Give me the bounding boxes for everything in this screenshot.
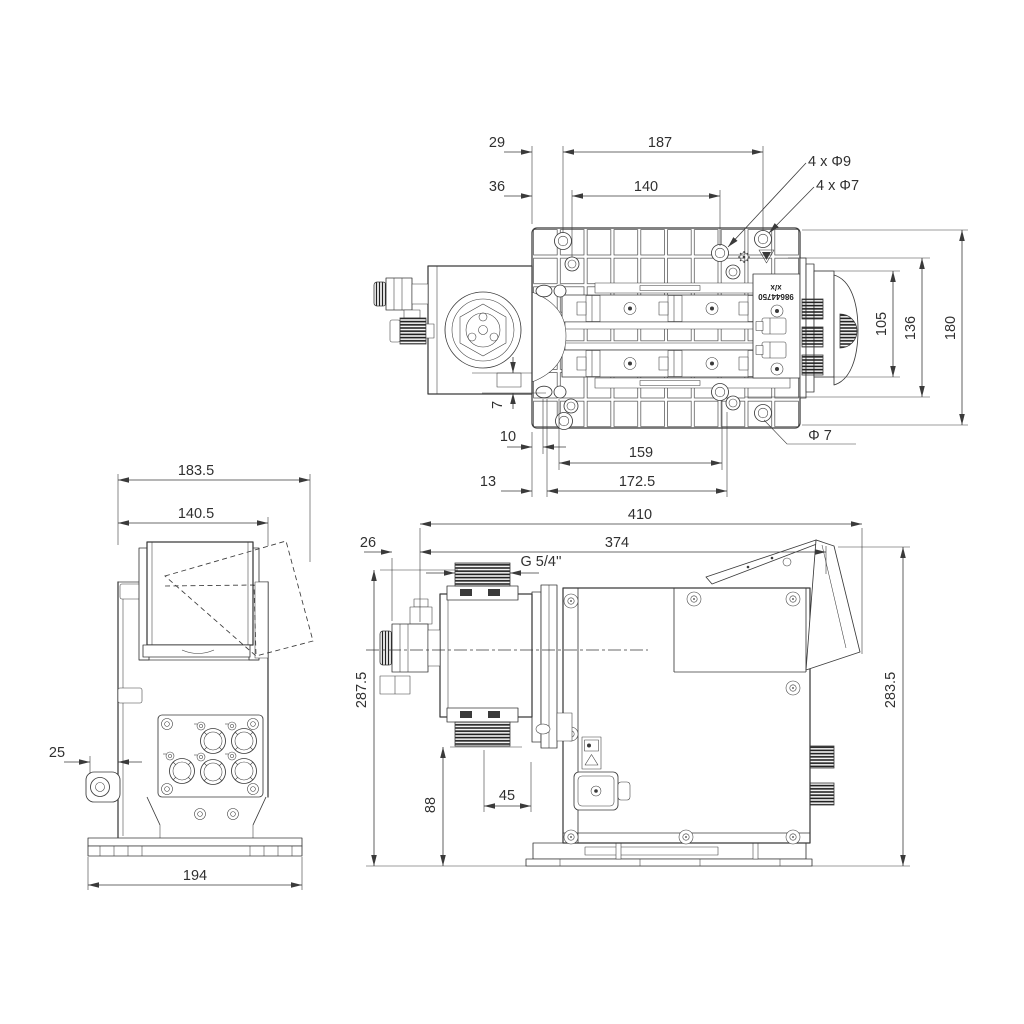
svg-text:283.5: 283.5 <box>883 672 899 708</box>
back-view: 183.5 140.5 25 194 <box>49 463 313 890</box>
dim-172-5: 172.5 <box>547 474 727 491</box>
drawing-canvas: x/x 98644750 <box>0 0 1024 1024</box>
svg-text:140.5: 140.5 <box>178 506 214 522</box>
dim-29: 29 <box>489 135 532 152</box>
dim-26: 26 <box>360 535 392 552</box>
knob-side-2 <box>810 783 834 805</box>
knob-top-1 <box>802 299 823 319</box>
dim-183-5: 183.5 <box>118 463 310 480</box>
svg-text:25: 25 <box>49 745 65 761</box>
nameplate-variant-text: x/x <box>770 283 782 292</box>
dim-287-5: 287.5 <box>354 570 374 866</box>
dim-136: 136 <box>903 258 922 397</box>
warning-label <box>582 737 601 769</box>
svg-text:4 x Φ7: 4 x Φ7 <box>816 178 859 194</box>
svg-text:13: 13 <box>480 474 496 490</box>
svg-text:10: 10 <box>500 429 516 445</box>
svg-text:187: 187 <box>648 135 672 151</box>
back-view-dimensions: 183.5 140.5 25 194 <box>49 463 310 890</box>
connector-panel <box>158 715 263 797</box>
dim-88: 88 <box>423 747 443 866</box>
dim-13: 13 <box>480 474 532 491</box>
svg-text:88: 88 <box>423 797 439 813</box>
dim-194: 194 <box>88 868 302 885</box>
svg-text:105: 105 <box>874 312 890 336</box>
callout-holes-d7: 4 x Φ7 <box>769 178 859 233</box>
pump-dimensional-drawing: x/x 98644750 <box>0 0 1024 1024</box>
knob-top-3 <box>802 355 823 375</box>
dim-180: 180 <box>943 230 962 425</box>
pump-head-top <box>374 266 532 394</box>
svg-text:29: 29 <box>489 135 505 151</box>
dim-140: 140 <box>572 179 720 196</box>
plate-nameplate: x/x 98644750 <box>753 274 800 378</box>
svg-text:140: 140 <box>634 179 658 195</box>
wall-bracket <box>86 772 120 802</box>
svg-text:36: 36 <box>489 179 505 195</box>
cable-gland-top <box>374 278 428 318</box>
dim-283-5: 283.5 <box>883 547 903 866</box>
svg-text:180: 180 <box>943 316 959 340</box>
dim-187: 187 <box>563 135 763 152</box>
cable-gland-side <box>380 599 440 694</box>
thread-g54-top <box>455 563 510 586</box>
svg-text:G 5/4'': G 5/4'' <box>520 554 561 570</box>
dim-36: 36 <box>489 179 532 196</box>
side-view: 410 374 26 G 5/4'' 287.5 283.5 88 <box>354 507 910 866</box>
svg-text:26: 26 <box>360 535 376 551</box>
dim-159: 159 <box>559 445 722 463</box>
side-base <box>526 841 812 866</box>
svg-text:159: 159 <box>629 445 653 461</box>
svg-text:194: 194 <box>183 868 207 884</box>
side-tab-lower <box>118 688 142 703</box>
svg-text:136: 136 <box>903 316 919 340</box>
knob-top-2 <box>802 327 823 347</box>
panel-button <box>783 558 791 566</box>
back-base <box>88 797 302 856</box>
svg-text:172.5: 172.5 <box>619 474 655 490</box>
thread-g54-bottom <box>455 722 510 746</box>
dim-410: 410 <box>420 507 862 524</box>
dim-374: 374 <box>420 535 826 552</box>
knob-side-1 <box>810 746 834 768</box>
svg-text:287.5: 287.5 <box>354 672 370 708</box>
housing-lid-edge <box>143 645 250 657</box>
svg-text:7: 7 <box>490 401 506 409</box>
top-view: x/x 98644750 <box>374 135 968 497</box>
suction-valve-top <box>447 563 518 600</box>
dim-45: 45 <box>484 788 531 806</box>
svg-text:374: 374 <box>605 535 629 551</box>
nameplate-part-number: 98644750 <box>758 292 794 301</box>
svg-text:45: 45 <box>499 788 515 804</box>
svg-text:183.5: 183.5 <box>178 463 214 479</box>
discharge-valve-bottom <box>447 708 518 746</box>
svg-text:4 x Φ9: 4 x Φ9 <box>808 154 851 170</box>
dim-105: 105 <box>874 271 893 377</box>
dim-25: 25 <box>49 745 142 762</box>
svg-text:Φ 7: Φ 7 <box>808 428 832 444</box>
side-knobs <box>810 746 834 805</box>
control-housing-back <box>139 542 268 660</box>
svg-text:410: 410 <box>628 507 652 523</box>
dim-140-5: 140.5 <box>118 506 268 523</box>
dim-10: 10 <box>500 429 566 447</box>
